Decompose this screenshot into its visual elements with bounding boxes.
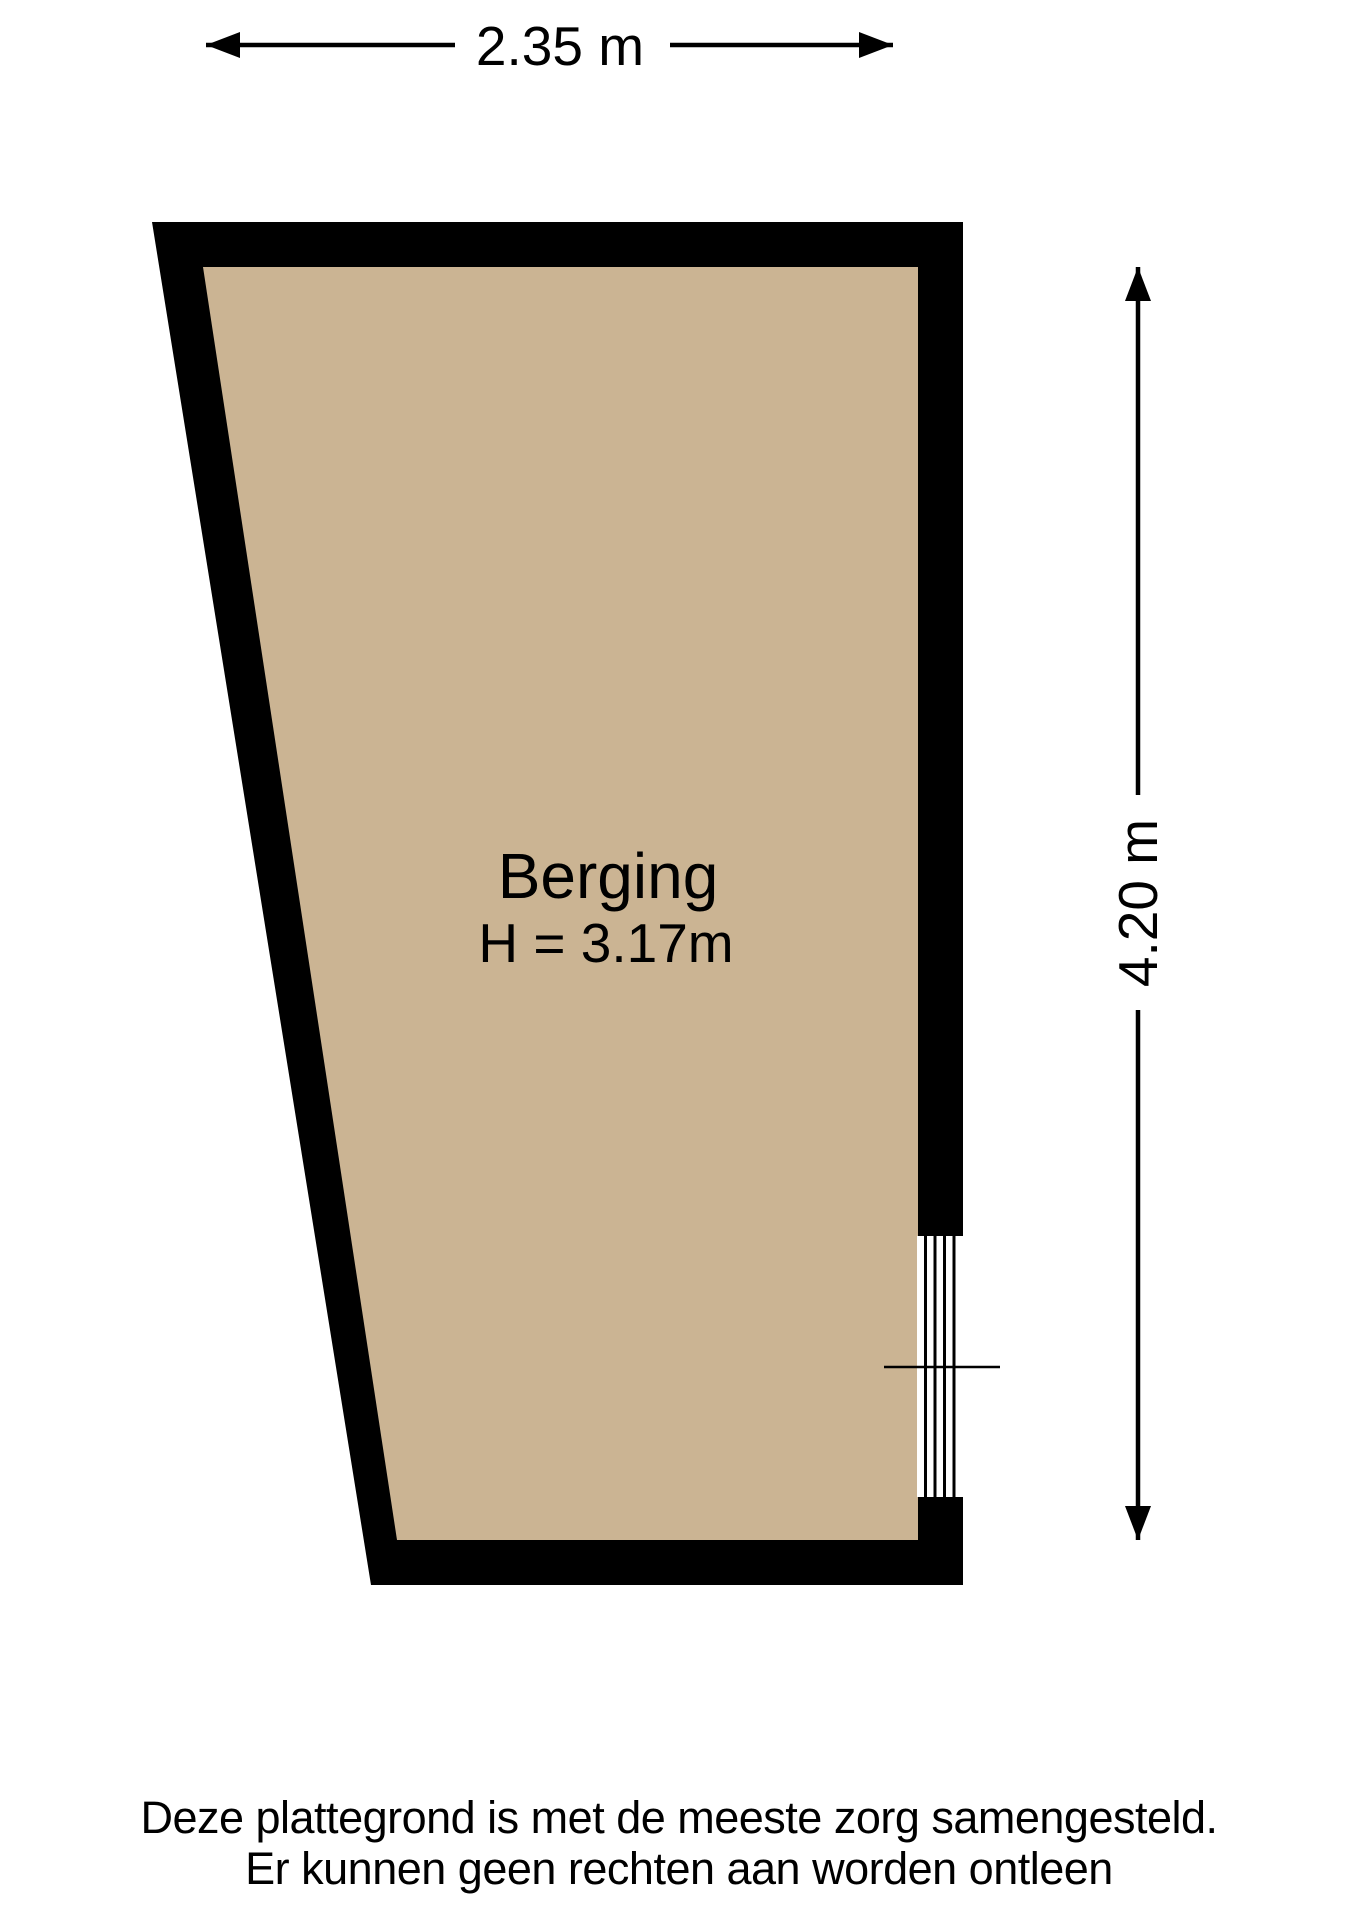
arrowhead-left-icon [206, 32, 240, 58]
depth-dimension-label: 4.20 m [1107, 819, 1169, 987]
depth-dimension: 4.20 m [1107, 267, 1169, 1540]
room-name-label: Berging [498, 840, 719, 912]
width-dimension: 2.35 m [206, 15, 893, 77]
footer-disclaimer: Deze plattegrond is met de meeste zorg s… [140, 1792, 1217, 1894]
floor-plan-svg: 2.35 m 4.20 m Berging H = 3.17m Deze pla… [0, 0, 1358, 1920]
footer-line1: Deze plattegrond is met de meeste zorg s… [140, 1792, 1217, 1843]
arrowhead-down-icon [1125, 1506, 1151, 1540]
footer-line2: Er kunnen geen rechten aan worden ontlee… [245, 1843, 1113, 1894]
room-label-group: Berging H = 3.17m [478, 840, 733, 974]
floor-plan-page: 2.35 m 4.20 m Berging H = 3.17m Deze pla… [0, 0, 1358, 1920]
width-dimension-label: 2.35 m [476, 15, 644, 77]
arrowhead-right-icon [859, 32, 893, 58]
room-ceiling-height-label: H = 3.17m [478, 912, 733, 974]
arrowhead-up-icon [1125, 267, 1151, 301]
